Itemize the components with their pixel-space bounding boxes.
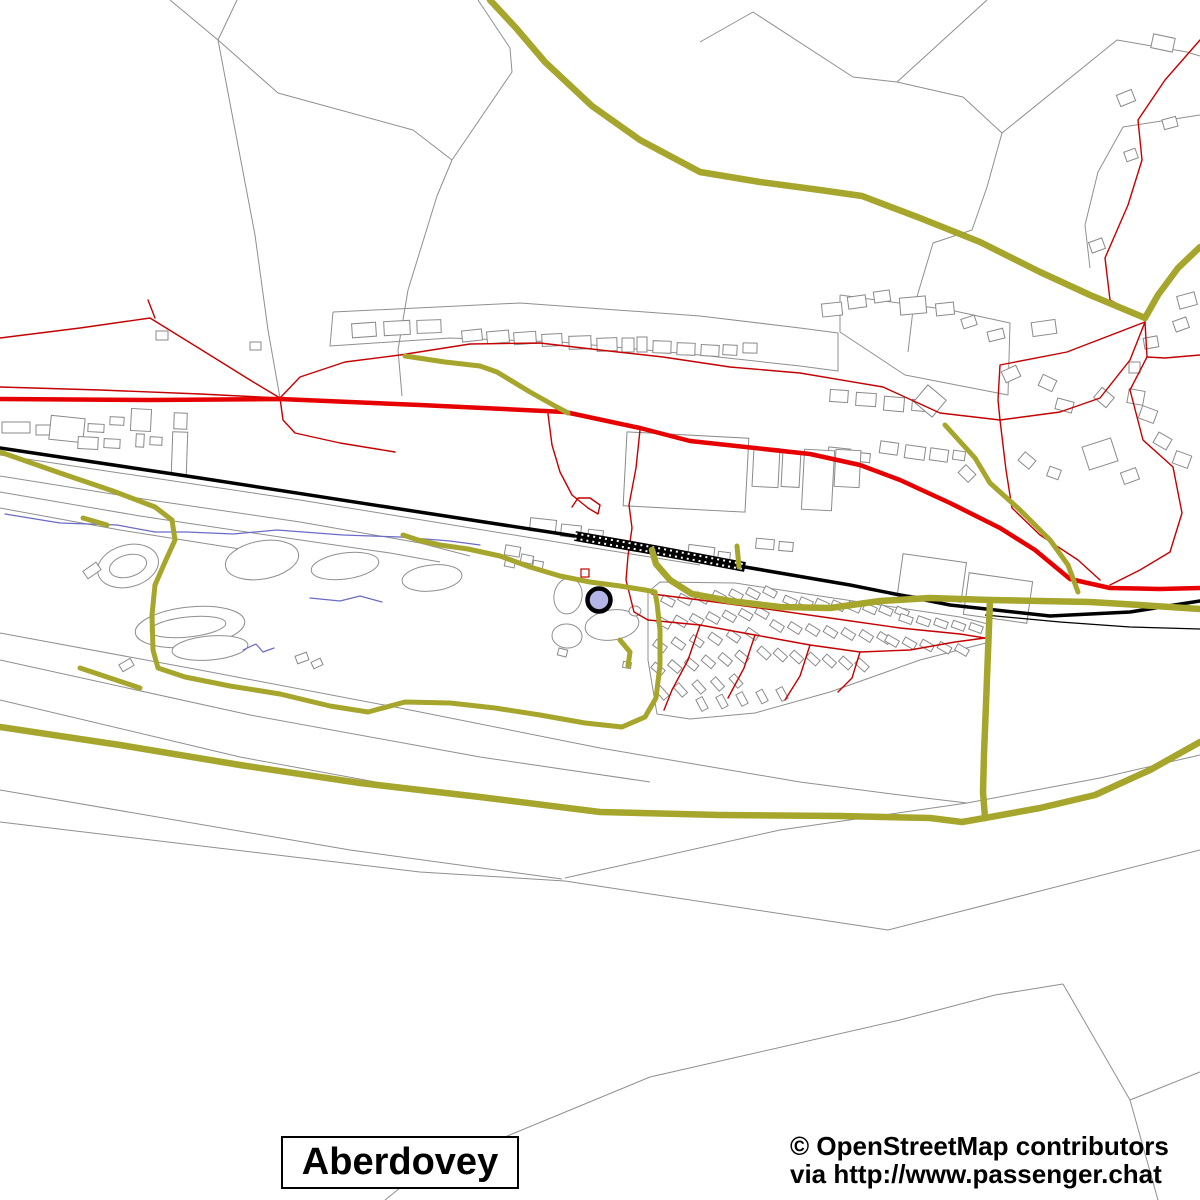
building (914, 385, 947, 417)
pond (551, 623, 583, 650)
caravan (696, 697, 708, 712)
contour-line (452, 0, 512, 160)
building (156, 331, 168, 340)
building (935, 302, 954, 316)
caravan (823, 626, 838, 639)
caravan (756, 689, 768, 704)
building (847, 295, 866, 309)
building (1151, 34, 1175, 52)
building (295, 652, 309, 664)
building (834, 449, 861, 487)
building (2, 422, 30, 433)
caravan (902, 637, 917, 650)
minor-road (148, 300, 155, 318)
olive-road (1145, 247, 1200, 318)
caravan (701, 655, 715, 669)
caravan (716, 694, 728, 709)
caravan (738, 608, 753, 621)
minor-road (0, 387, 280, 398)
building (856, 392, 877, 406)
caravan (955, 644, 970, 657)
contour-line (1130, 1072, 1200, 1100)
building (504, 545, 521, 557)
building (873, 290, 890, 303)
building (1129, 362, 1140, 373)
building (1162, 116, 1178, 129)
caravan (899, 613, 914, 624)
building (130, 408, 151, 431)
building (622, 338, 634, 352)
minor-road (0, 318, 280, 398)
caravan (692, 680, 706, 694)
caravan (841, 628, 856, 641)
building (171, 432, 187, 475)
map-canvas[interactable] (0, 0, 1200, 1200)
contour-line (0, 660, 650, 782)
building (417, 320, 441, 334)
caravan (736, 692, 748, 707)
building (1089, 238, 1106, 253)
caravan (706, 612, 721, 625)
caravan (757, 646, 771, 660)
caravan (718, 653, 732, 667)
caravan (805, 624, 820, 637)
building (821, 302, 842, 317)
stream (5, 514, 480, 545)
contour-line (700, 0, 987, 82)
building (1082, 438, 1118, 470)
caravan (689, 635, 704, 648)
building (104, 439, 120, 449)
building (557, 648, 568, 657)
olive-road (490, 0, 1145, 318)
caravan (916, 616, 931, 627)
building (929, 448, 948, 462)
olive-path (80, 668, 140, 688)
contour-line (218, 40, 452, 160)
building (119, 658, 134, 671)
building (701, 345, 720, 357)
caravan (674, 683, 688, 697)
contour-line (0, 790, 562, 879)
building (1116, 89, 1135, 106)
building (1153, 432, 1172, 450)
red-square (581, 569, 589, 577)
caravan (787, 622, 802, 635)
building (637, 337, 647, 352)
building (752, 447, 780, 487)
attribution-line2: via http://www.passenger.chat (790, 1160, 1169, 1188)
caravan (746, 587, 761, 599)
building (487, 330, 510, 344)
caravan (729, 674, 743, 688)
caravan (673, 615, 688, 628)
building (1031, 319, 1057, 336)
pond (310, 548, 381, 583)
building (384, 320, 411, 335)
map-marker[interactable] (588, 589, 611, 612)
building (779, 541, 794, 551)
olive-road (985, 742, 1200, 818)
building (352, 322, 377, 338)
contour-line (170, 0, 280, 398)
caravan (859, 630, 874, 643)
building (150, 437, 162, 446)
minor-road (1110, 322, 1182, 585)
building (174, 413, 188, 429)
caravan (969, 622, 984, 633)
attribution-line1: © OpenStreetMap contributors (790, 1132, 1169, 1160)
building (1038, 374, 1057, 391)
contour-line (0, 508, 240, 549)
contour-line (0, 822, 565, 881)
caravan (671, 637, 686, 650)
building (1124, 148, 1139, 162)
building (1172, 451, 1191, 469)
building (781, 452, 801, 488)
building (756, 538, 775, 550)
contour-line (218, 0, 237, 40)
building (952, 450, 965, 461)
pond (401, 562, 463, 594)
building (723, 345, 738, 356)
olive-road (0, 727, 985, 822)
building (88, 424, 104, 433)
caravan (838, 656, 852, 670)
caravan (763, 586, 778, 598)
building (1094, 387, 1115, 407)
building (961, 315, 977, 329)
minor-road (1147, 355, 1200, 358)
place-label: Aberdovey (302, 1141, 498, 1184)
building (461, 329, 482, 342)
caravan (770, 620, 785, 633)
caravan (934, 618, 949, 629)
caravan (722, 610, 737, 623)
minor-road (548, 414, 600, 514)
caravan (806, 652, 820, 666)
building (250, 342, 261, 350)
building (879, 441, 898, 455)
olive-path (737, 546, 739, 567)
minor-road (728, 635, 755, 698)
contour-line (0, 633, 967, 803)
building (677, 343, 695, 356)
building (883, 396, 904, 412)
minor-road (1105, 40, 1200, 318)
place-label-box: Aberdovey (281, 1136, 519, 1189)
building (1018, 452, 1036, 469)
building (1001, 365, 1021, 383)
building (1120, 468, 1139, 485)
building (830, 389, 849, 402)
minor-road (280, 398, 395, 452)
building (1047, 466, 1062, 480)
building (1173, 317, 1190, 332)
building (899, 296, 926, 315)
caravan (822, 654, 836, 668)
attribution: © OpenStreetMap contributors via http://… (790, 1132, 1169, 1188)
building (1138, 406, 1157, 424)
building (743, 343, 757, 353)
building (904, 445, 926, 461)
pond (222, 535, 301, 585)
building (136, 434, 145, 447)
minor-road (1000, 420, 1100, 580)
caravan (711, 677, 725, 691)
caravan (668, 660, 682, 674)
building (653, 341, 671, 354)
olive-road (652, 550, 1200, 609)
building (1177, 292, 1198, 309)
contour-line (565, 850, 1200, 930)
caravan (708, 632, 723, 645)
building (110, 417, 124, 426)
building (78, 436, 99, 449)
contour-line (0, 492, 440, 562)
building (958, 465, 976, 483)
caravan (773, 648, 787, 662)
stream (310, 596, 382, 602)
caravan (885, 635, 900, 648)
olive-road (983, 600, 990, 818)
caravan (789, 650, 803, 664)
building (311, 658, 323, 669)
caravan (951, 620, 966, 631)
building (987, 328, 1005, 342)
